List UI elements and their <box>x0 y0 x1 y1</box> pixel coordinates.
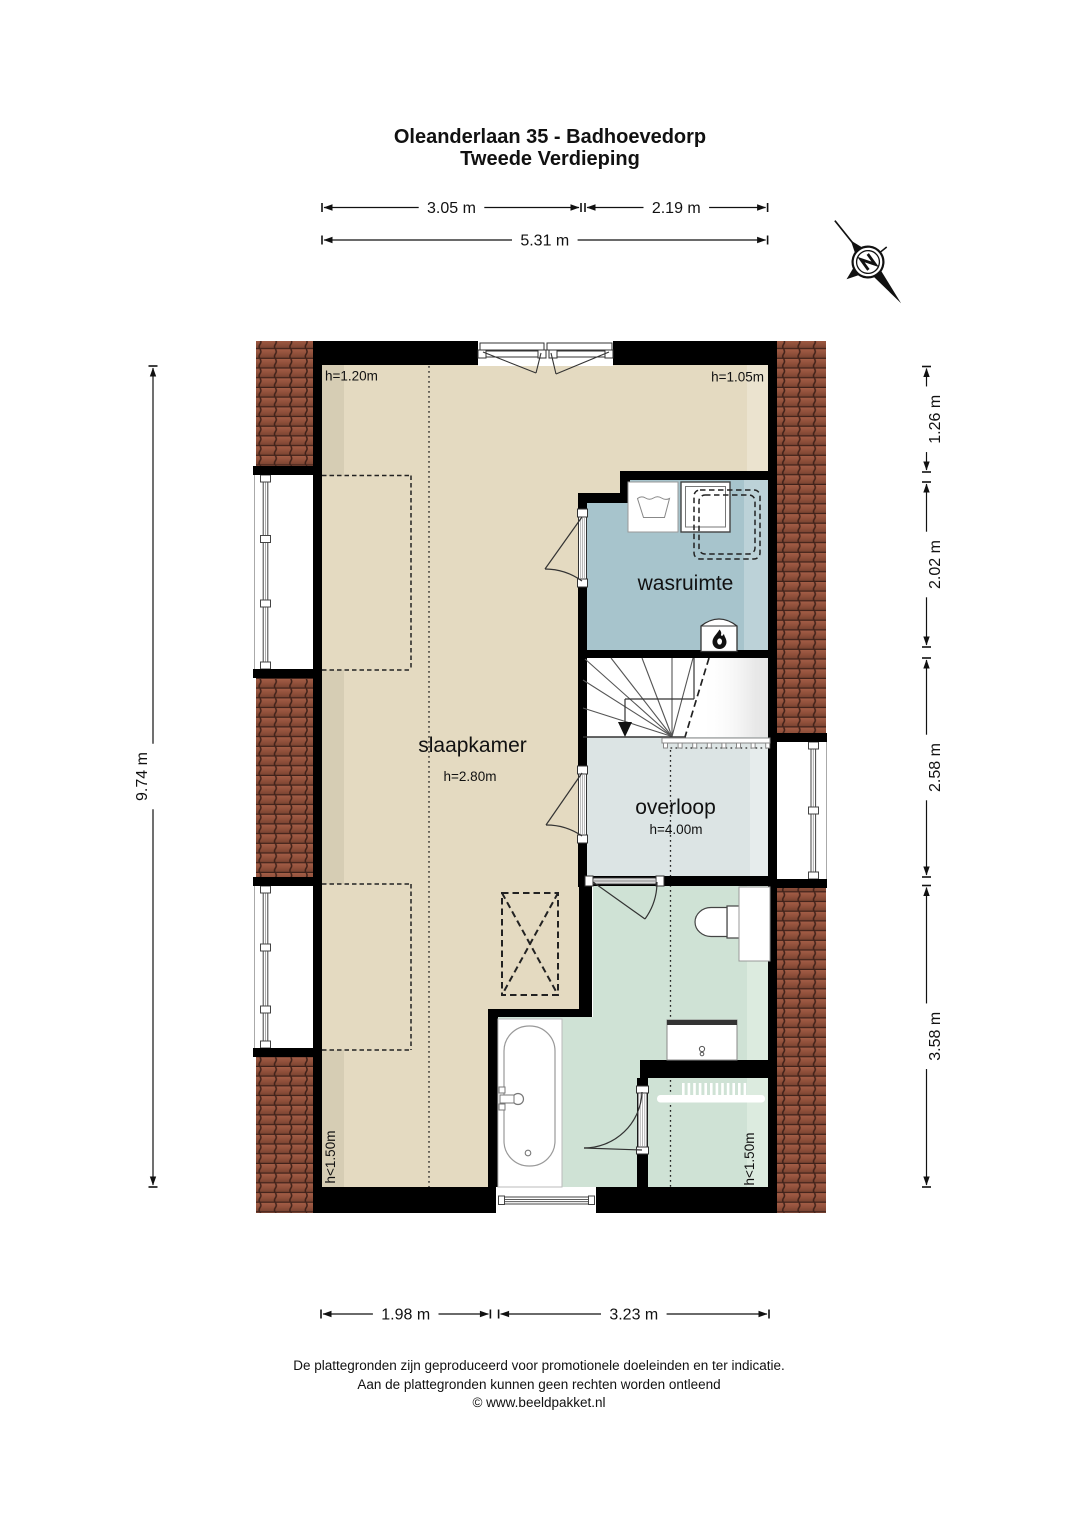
svg-text:overloop: overloop <box>635 796 716 819</box>
svg-text:Tweede Verdieping: Tweede Verdieping <box>460 148 640 170</box>
svg-text:© www.beeldpakket.nl: © www.beeldpakket.nl <box>472 1395 605 1410</box>
svg-text:3.23 m: 3.23 m <box>609 1307 658 1324</box>
svg-text:2.19 m: 2.19 m <box>652 200 701 217</box>
svg-text:h=2.80m: h=2.80m <box>444 769 497 784</box>
svg-text:h<1.50m: h<1.50m <box>742 1133 757 1186</box>
svg-text:1.26 m: 1.26 m <box>927 395 944 444</box>
svg-text:9.74 m: 9.74 m <box>134 752 151 801</box>
svg-text:h=1.05m: h=1.05m <box>711 370 764 385</box>
svg-text:3.05 m: 3.05 m <box>427 200 476 217</box>
svg-text:3.58 m: 3.58 m <box>927 1012 944 1061</box>
svg-text:slaapkamer: slaapkamer <box>418 734 527 757</box>
svg-text:h<1.50m: h<1.50m <box>323 1131 338 1184</box>
svg-text:Oleanderlaan 35 - Badhoevedorp: Oleanderlaan 35 - Badhoevedorp <box>394 126 706 148</box>
svg-text:Aan de plattegronden kunnen ge: Aan de plattegronden kunnen geen rechten… <box>357 1377 720 1392</box>
svg-text:5.31 m: 5.31 m <box>520 233 569 250</box>
svg-text:2.58 m: 2.58 m <box>927 743 944 792</box>
svg-text:1.98 m: 1.98 m <box>381 1307 430 1324</box>
svg-text:wasruimte: wasruimte <box>637 572 734 595</box>
svg-text:h=1.20m: h=1.20m <box>325 369 378 384</box>
svg-text:De plattegronden zijn geproduc: De plattegronden zijn geproduceerd voor … <box>293 1358 785 1373</box>
svg-text:h=4.00m: h=4.00m <box>650 822 703 837</box>
svg-text:2.02 m: 2.02 m <box>927 540 944 589</box>
